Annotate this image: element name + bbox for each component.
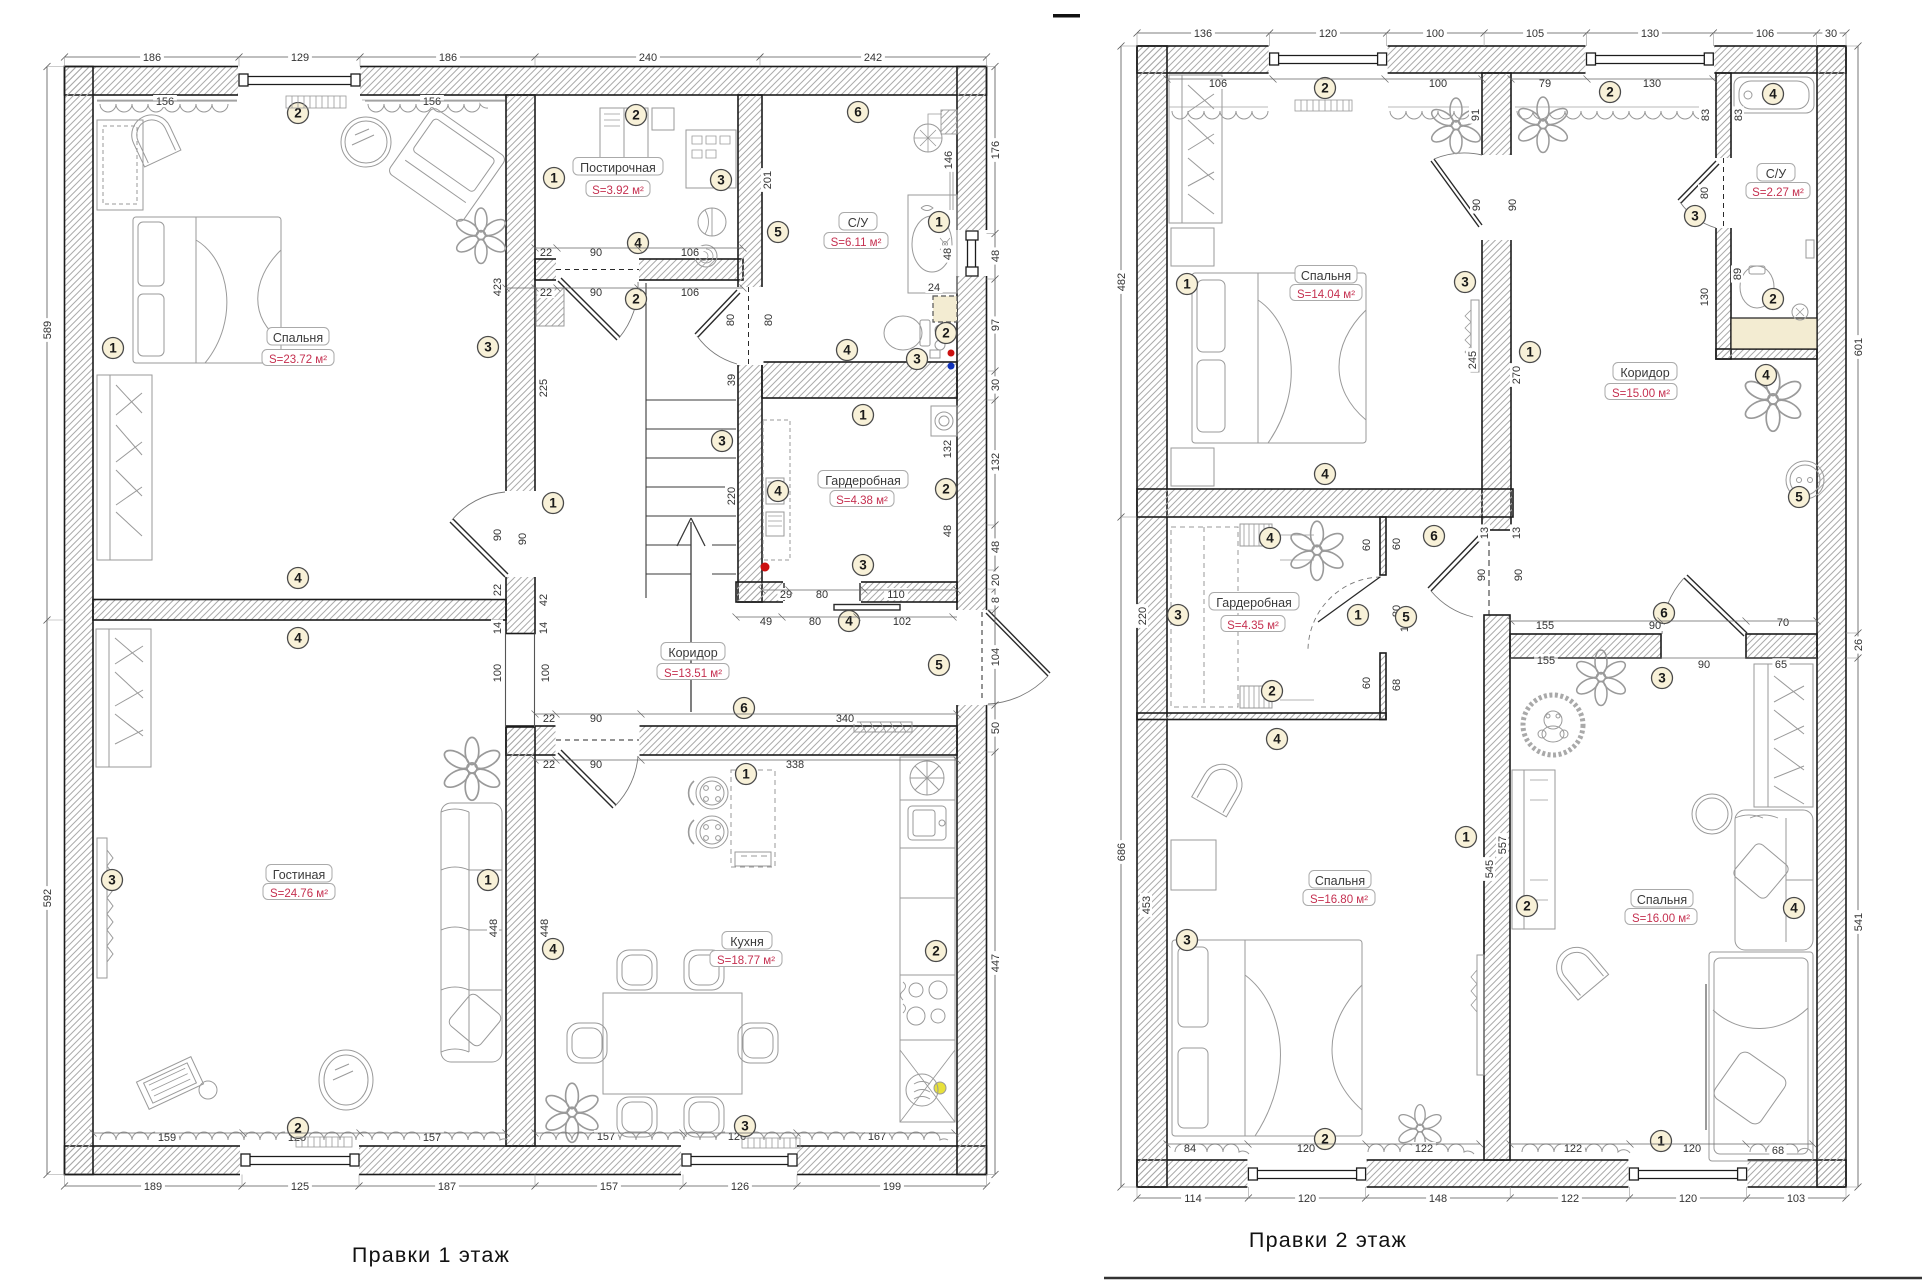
svg-text:79: 79: [1539, 78, 1551, 90]
svg-text:4: 4: [1321, 467, 1329, 482]
svg-text:100: 100: [1426, 28, 1444, 40]
svg-text:4: 4: [843, 343, 851, 358]
svg-text:2: 2: [1769, 292, 1777, 307]
svg-text:146: 146: [943, 151, 955, 169]
svg-text:159: 159: [158, 1132, 176, 1144]
svg-text:1: 1: [1526, 345, 1534, 360]
svg-text:3: 3: [1658, 671, 1666, 686]
svg-text:2: 2: [1606, 85, 1614, 100]
svg-text:3: 3: [1461, 275, 1469, 290]
svg-text:447: 447: [990, 954, 1002, 972]
svg-text:S=14.04 м²: S=14.04 м²: [1297, 289, 1355, 301]
svg-text:С/У: С/У: [848, 216, 869, 230]
svg-text:S=2.27 м²: S=2.27 м²: [1752, 187, 1804, 199]
svg-text:3: 3: [1174, 608, 1182, 623]
svg-text:S=18.77 м²: S=18.77 м²: [717, 955, 775, 967]
svg-text:1: 1: [484, 873, 492, 888]
svg-text:3: 3: [1183, 933, 1191, 948]
svg-text:14: 14: [538, 622, 550, 634]
svg-text:91: 91: [1470, 109, 1482, 121]
svg-text:3: 3: [859, 558, 867, 573]
svg-text:1: 1: [1657, 1134, 1665, 1149]
svg-text:120: 120: [1679, 1193, 1697, 1205]
svg-text:105: 105: [1526, 28, 1544, 40]
svg-text:Спальня: Спальня: [1637, 893, 1687, 907]
svg-text:541: 541: [1853, 913, 1865, 931]
svg-text:S=13.51 м²: S=13.51 м²: [664, 668, 722, 680]
svg-text:90: 90: [1471, 199, 1483, 211]
svg-text:Правки 2 этаж: Правки 2 этаж: [1249, 1228, 1407, 1252]
svg-text:1: 1: [1354, 608, 1362, 623]
svg-text:120: 120: [1683, 1143, 1701, 1155]
svg-text:60: 60: [1361, 539, 1373, 551]
svg-text:42: 42: [538, 594, 550, 606]
svg-text:2: 2: [1523, 899, 1531, 914]
svg-text:270: 270: [1511, 366, 1523, 384]
svg-text:8: 8: [990, 597, 1002, 603]
svg-text:S=6.11 м²: S=6.11 м²: [831, 237, 882, 249]
svg-text:Кухня: Кухня: [730, 935, 763, 949]
svg-text:3: 3: [741, 1119, 749, 1134]
svg-text:423: 423: [492, 278, 504, 296]
svg-text:157: 157: [600, 1181, 618, 1193]
svg-text:80: 80: [725, 314, 737, 326]
svg-text:1: 1: [550, 171, 558, 186]
svg-text:242: 242: [864, 52, 882, 64]
svg-text:130: 130: [1641, 28, 1659, 40]
svg-text:2: 2: [632, 108, 640, 123]
svg-text:14: 14: [492, 622, 504, 634]
svg-text:90: 90: [1698, 659, 1710, 671]
svg-text:80: 80: [809, 616, 821, 628]
svg-text:155: 155: [1536, 620, 1554, 632]
svg-text:1: 1: [1462, 830, 1470, 845]
svg-text:156: 156: [423, 96, 441, 108]
svg-text:С/У: С/У: [1766, 167, 1787, 181]
svg-text:589: 589: [42, 321, 54, 339]
svg-text:4: 4: [1790, 901, 1798, 916]
svg-text:601: 601: [1853, 338, 1865, 356]
svg-text:13: 13: [1479, 527, 1491, 539]
svg-text:90: 90: [590, 247, 602, 259]
svg-text:125: 125: [291, 1181, 309, 1193]
svg-text:3: 3: [484, 340, 492, 355]
svg-text:22: 22: [492, 584, 504, 596]
svg-text:3: 3: [1691, 209, 1699, 224]
svg-text:22: 22: [543, 713, 555, 725]
svg-text:130: 130: [1699, 288, 1711, 306]
svg-text:245: 245: [1467, 351, 1479, 369]
svg-text:1: 1: [109, 341, 117, 356]
svg-text:106: 106: [681, 287, 699, 299]
svg-text:65: 65: [1775, 659, 1787, 671]
svg-text:4: 4: [1762, 368, 1770, 383]
svg-text:60: 60: [1391, 538, 1403, 550]
svg-text:68: 68: [1772, 1145, 1784, 1157]
svg-text:3: 3: [913, 352, 921, 367]
svg-text:80: 80: [816, 589, 828, 601]
svg-text:90: 90: [492, 529, 504, 541]
svg-text:22: 22: [540, 287, 552, 299]
svg-text:30: 30: [990, 379, 1002, 391]
svg-text:Спальня: Спальня: [1315, 874, 1365, 888]
svg-text:22: 22: [543, 759, 555, 771]
svg-text:103: 103: [1787, 1193, 1805, 1205]
svg-text:100: 100: [1429, 78, 1447, 90]
svg-text:90: 90: [590, 287, 602, 299]
svg-text:201: 201: [762, 171, 774, 189]
svg-text:157: 157: [423, 1132, 441, 1144]
svg-text:132: 132: [990, 453, 1002, 471]
svg-text:340: 340: [836, 713, 854, 725]
svg-text:S=4.35 м²: S=4.35 м²: [1227, 620, 1279, 632]
svg-text:S=16.80 м²: S=16.80 м²: [1310, 894, 1368, 906]
svg-text:122: 122: [1564, 1143, 1582, 1155]
svg-text:90: 90: [1507, 199, 1519, 211]
svg-text:122: 122: [1415, 1143, 1433, 1155]
svg-text:5: 5: [774, 225, 782, 240]
svg-text:6: 6: [740, 701, 748, 716]
svg-text:6: 6: [1430, 529, 1438, 544]
svg-text:48: 48: [990, 250, 1002, 262]
svg-text:90: 90: [1513, 569, 1525, 581]
svg-text:90: 90: [590, 713, 602, 725]
svg-text:48: 48: [942, 248, 954, 260]
svg-text:1: 1: [935, 215, 943, 230]
svg-text:4: 4: [294, 571, 302, 586]
svg-text:84: 84: [1184, 1143, 1196, 1155]
svg-text:225: 225: [538, 379, 550, 397]
svg-text:482: 482: [1116, 273, 1128, 291]
svg-text:199: 199: [883, 1181, 901, 1193]
svg-text:1: 1: [549, 496, 557, 511]
svg-text:80: 80: [1699, 187, 1711, 199]
svg-text:70: 70: [1777, 617, 1789, 629]
svg-text:1: 1: [1183, 277, 1191, 292]
svg-text:155: 155: [1537, 655, 1555, 667]
svg-text:48: 48: [942, 525, 954, 537]
svg-text:4: 4: [294, 631, 302, 646]
svg-text:120: 120: [1297, 1143, 1315, 1155]
svg-text:104: 104: [990, 648, 1002, 666]
svg-text:176: 176: [990, 141, 1002, 159]
svg-text:2: 2: [932, 944, 940, 959]
svg-text:100: 100: [540, 664, 552, 682]
svg-text:26: 26: [1853, 639, 1865, 651]
svg-text:106: 106: [1756, 28, 1774, 40]
svg-text:S=23.72 м²: S=23.72 м²: [269, 354, 327, 366]
svg-text:148: 148: [1429, 1193, 1447, 1205]
svg-text:49: 49: [760, 616, 772, 628]
svg-text:2: 2: [1268, 684, 1276, 699]
svg-text:4: 4: [1769, 87, 1777, 102]
svg-text:Спальня: Спальня: [1301, 269, 1351, 283]
svg-text:3: 3: [718, 434, 726, 449]
svg-text:20: 20: [990, 574, 1002, 586]
svg-text:338: 338: [786, 759, 804, 771]
svg-text:3: 3: [717, 173, 725, 188]
svg-text:240: 240: [639, 52, 657, 64]
svg-text:448: 448: [539, 919, 551, 937]
svg-text:39: 39: [726, 374, 738, 386]
svg-text:90: 90: [1476, 569, 1488, 581]
svg-text:129: 129: [291, 52, 309, 64]
svg-text:4: 4: [1273, 732, 1281, 747]
svg-text:2: 2: [942, 482, 950, 497]
svg-text:S=16.00 м²: S=16.00 м²: [1632, 913, 1690, 925]
svg-text:22: 22: [540, 247, 552, 259]
svg-text:220: 220: [726, 487, 738, 505]
svg-text:592: 592: [42, 889, 54, 907]
svg-text:4: 4: [1266, 531, 1274, 546]
svg-text:686: 686: [1116, 843, 1128, 861]
svg-text:S=15.00 м²: S=15.00 м²: [1612, 388, 1670, 400]
svg-text:186: 186: [439, 52, 457, 64]
svg-text:4: 4: [845, 614, 853, 629]
svg-text:Правки 1 этаж: Правки 1 этаж: [352, 1243, 510, 1267]
svg-text:106: 106: [1209, 78, 1227, 90]
svg-text:6: 6: [854, 105, 862, 120]
svg-text:Постирочная: Постирочная: [580, 161, 656, 175]
svg-text:220: 220: [1137, 607, 1149, 625]
svg-text:106: 106: [681, 247, 699, 259]
svg-text:1: 1: [859, 408, 867, 423]
svg-text:187: 187: [438, 1181, 456, 1193]
svg-text:4: 4: [774, 484, 782, 499]
svg-text:545: 545: [1484, 860, 1496, 878]
svg-text:557: 557: [1497, 836, 1509, 854]
svg-text:90: 90: [590, 759, 602, 771]
svg-text:2: 2: [942, 326, 950, 341]
svg-text:89: 89: [1732, 268, 1744, 280]
svg-text:83: 83: [1733, 109, 1745, 121]
svg-text:Гардеробная: Гардеробная: [1216, 596, 1292, 610]
svg-text:80: 80: [763, 314, 775, 326]
svg-text:453: 453: [1141, 896, 1153, 914]
svg-text:90: 90: [517, 533, 529, 545]
svg-text:100: 100: [492, 664, 504, 682]
svg-text:Спальня: Спальня: [273, 331, 323, 345]
svg-text:126: 126: [731, 1181, 749, 1193]
svg-text:120: 120: [1298, 1193, 1316, 1205]
svg-text:102: 102: [893, 616, 911, 628]
svg-text:Коридор: Коридор: [668, 646, 717, 660]
svg-text:110: 110: [887, 589, 905, 601]
svg-text:130: 130: [1643, 78, 1661, 90]
svg-text:50: 50: [990, 722, 1002, 734]
svg-text:60: 60: [1361, 677, 1373, 689]
svg-text:Гостиная: Гостиная: [273, 868, 325, 882]
svg-text:122: 122: [1561, 1193, 1579, 1205]
svg-text:5: 5: [1795, 490, 1803, 505]
svg-text:1: 1: [742, 767, 750, 782]
svg-text:114: 114: [1184, 1193, 1202, 1205]
svg-text:156: 156: [156, 96, 174, 108]
svg-text:132: 132: [942, 440, 954, 458]
svg-text:Коридор: Коридор: [1620, 366, 1669, 380]
svg-text:68: 68: [1391, 679, 1403, 691]
svg-text:189: 189: [144, 1181, 162, 1193]
svg-text:186: 186: [143, 52, 161, 64]
svg-text:448: 448: [488, 919, 500, 937]
svg-text:120: 120: [1319, 28, 1337, 40]
svg-text:5: 5: [1402, 610, 1410, 625]
svg-text:S=4.38 м²: S=4.38 м²: [836, 495, 888, 507]
svg-text:2: 2: [632, 292, 640, 307]
svg-text:24: 24: [928, 282, 940, 294]
svg-text:5: 5: [935, 658, 943, 673]
svg-text:13: 13: [1511, 527, 1523, 539]
svg-text:S=3.92 м²: S=3.92 м²: [592, 185, 644, 197]
svg-text:2: 2: [1321, 81, 1329, 96]
svg-text:97: 97: [990, 319, 1002, 331]
svg-text:83: 83: [1700, 109, 1712, 121]
svg-text:6: 6: [1660, 606, 1668, 621]
svg-text:Гардеробная: Гардеробная: [825, 474, 901, 488]
svg-text:4: 4: [549, 942, 557, 957]
svg-text:30: 30: [1825, 28, 1837, 40]
svg-text:136: 136: [1194, 28, 1212, 40]
svg-text:3: 3: [108, 873, 116, 888]
svg-text:S=24.76 м²: S=24.76 м²: [270, 888, 328, 900]
svg-text:48: 48: [990, 541, 1002, 553]
